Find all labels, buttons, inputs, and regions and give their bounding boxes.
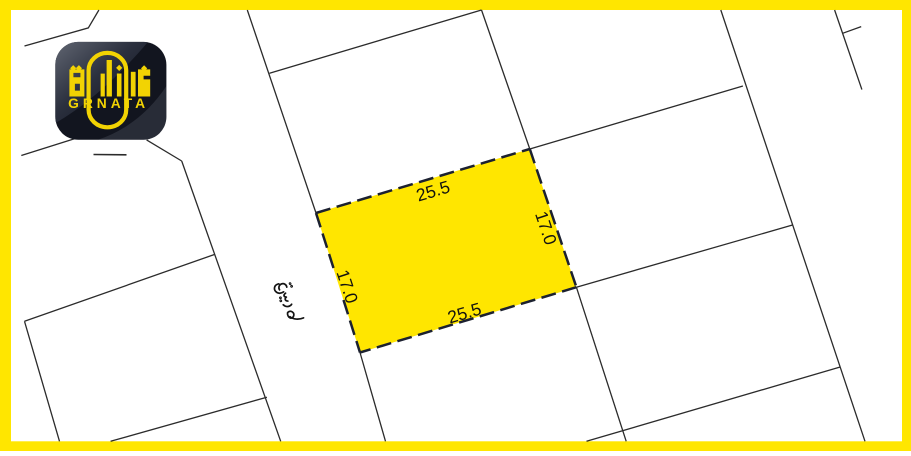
svg-text:GRNATA: GRNATA bbox=[68, 96, 149, 111]
